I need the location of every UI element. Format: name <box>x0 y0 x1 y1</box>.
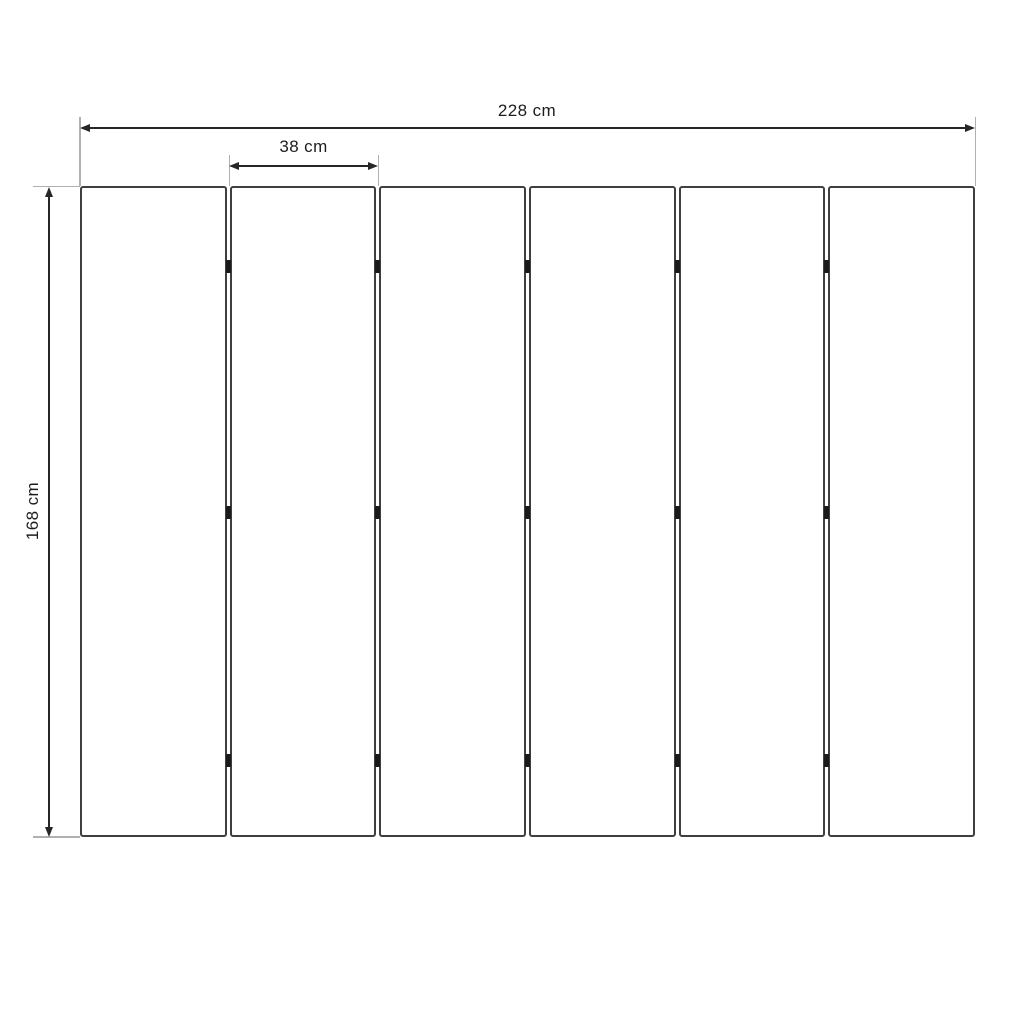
hinge-icon <box>675 260 680 273</box>
arrowhead-left-icon <box>229 162 239 170</box>
hinge-icon <box>375 260 380 273</box>
arrowhead-right-icon <box>965 124 975 132</box>
dim-panel-width-label: 38 cm <box>229 137 378 157</box>
panel-6 <box>828 186 975 837</box>
hinge-icon <box>824 506 829 519</box>
hinge-icon <box>226 754 231 767</box>
hinge-icon <box>375 754 380 767</box>
hinge-icon <box>525 260 530 273</box>
hinge-icon <box>226 506 231 519</box>
extension-line-left <box>229 155 231 186</box>
arrowhead-right-icon <box>368 162 378 170</box>
dimension-diagram: 228 cm 38 cm 168 cm <box>0 0 1024 1024</box>
hinge-icon <box>525 506 530 519</box>
panels-row <box>80 186 975 837</box>
arrowhead-left-icon <box>80 124 90 132</box>
hinge-icon <box>375 506 380 519</box>
hinge-icon <box>675 754 680 767</box>
arrowhead-down-icon <box>45 827 53 837</box>
extension-line-top <box>33 186 80 188</box>
arrowhead-up-icon <box>45 187 53 197</box>
panel-2 <box>230 186 377 837</box>
panel-3 <box>379 186 526 837</box>
extension-line-bottom <box>33 836 80 838</box>
hinge-icon <box>824 260 829 273</box>
extension-line-right <box>378 155 380 186</box>
dimension-line <box>238 165 369 167</box>
hinge-icon <box>226 260 231 273</box>
panel-5 <box>679 186 826 837</box>
panel-1 <box>80 186 227 837</box>
dimension-line <box>48 196 50 827</box>
dimension-line <box>89 127 966 129</box>
hinge-icon <box>525 754 530 767</box>
hinge-icon <box>824 754 829 767</box>
panel-4 <box>529 186 676 837</box>
hinge-icon <box>675 506 680 519</box>
dim-height-label: 168 cm <box>22 461 44 561</box>
dim-total-width-label: 228 cm <box>427 101 627 121</box>
